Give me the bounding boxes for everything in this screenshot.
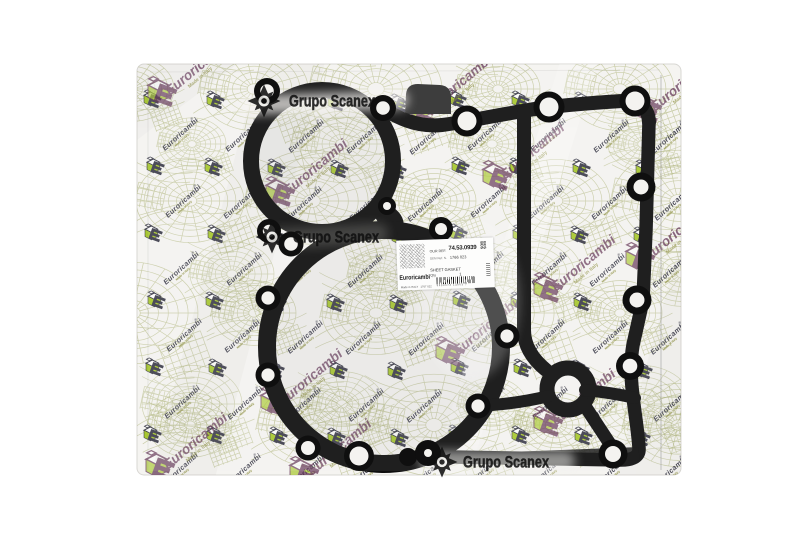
svg-text:Grupo Scanex: Grupo Scanex: [289, 93, 376, 111]
svg-text:Grupo Scanex: Grupo Scanex: [293, 229, 380, 247]
svg-text:Grupo Scanex: Grupo Scanex: [463, 454, 550, 472]
